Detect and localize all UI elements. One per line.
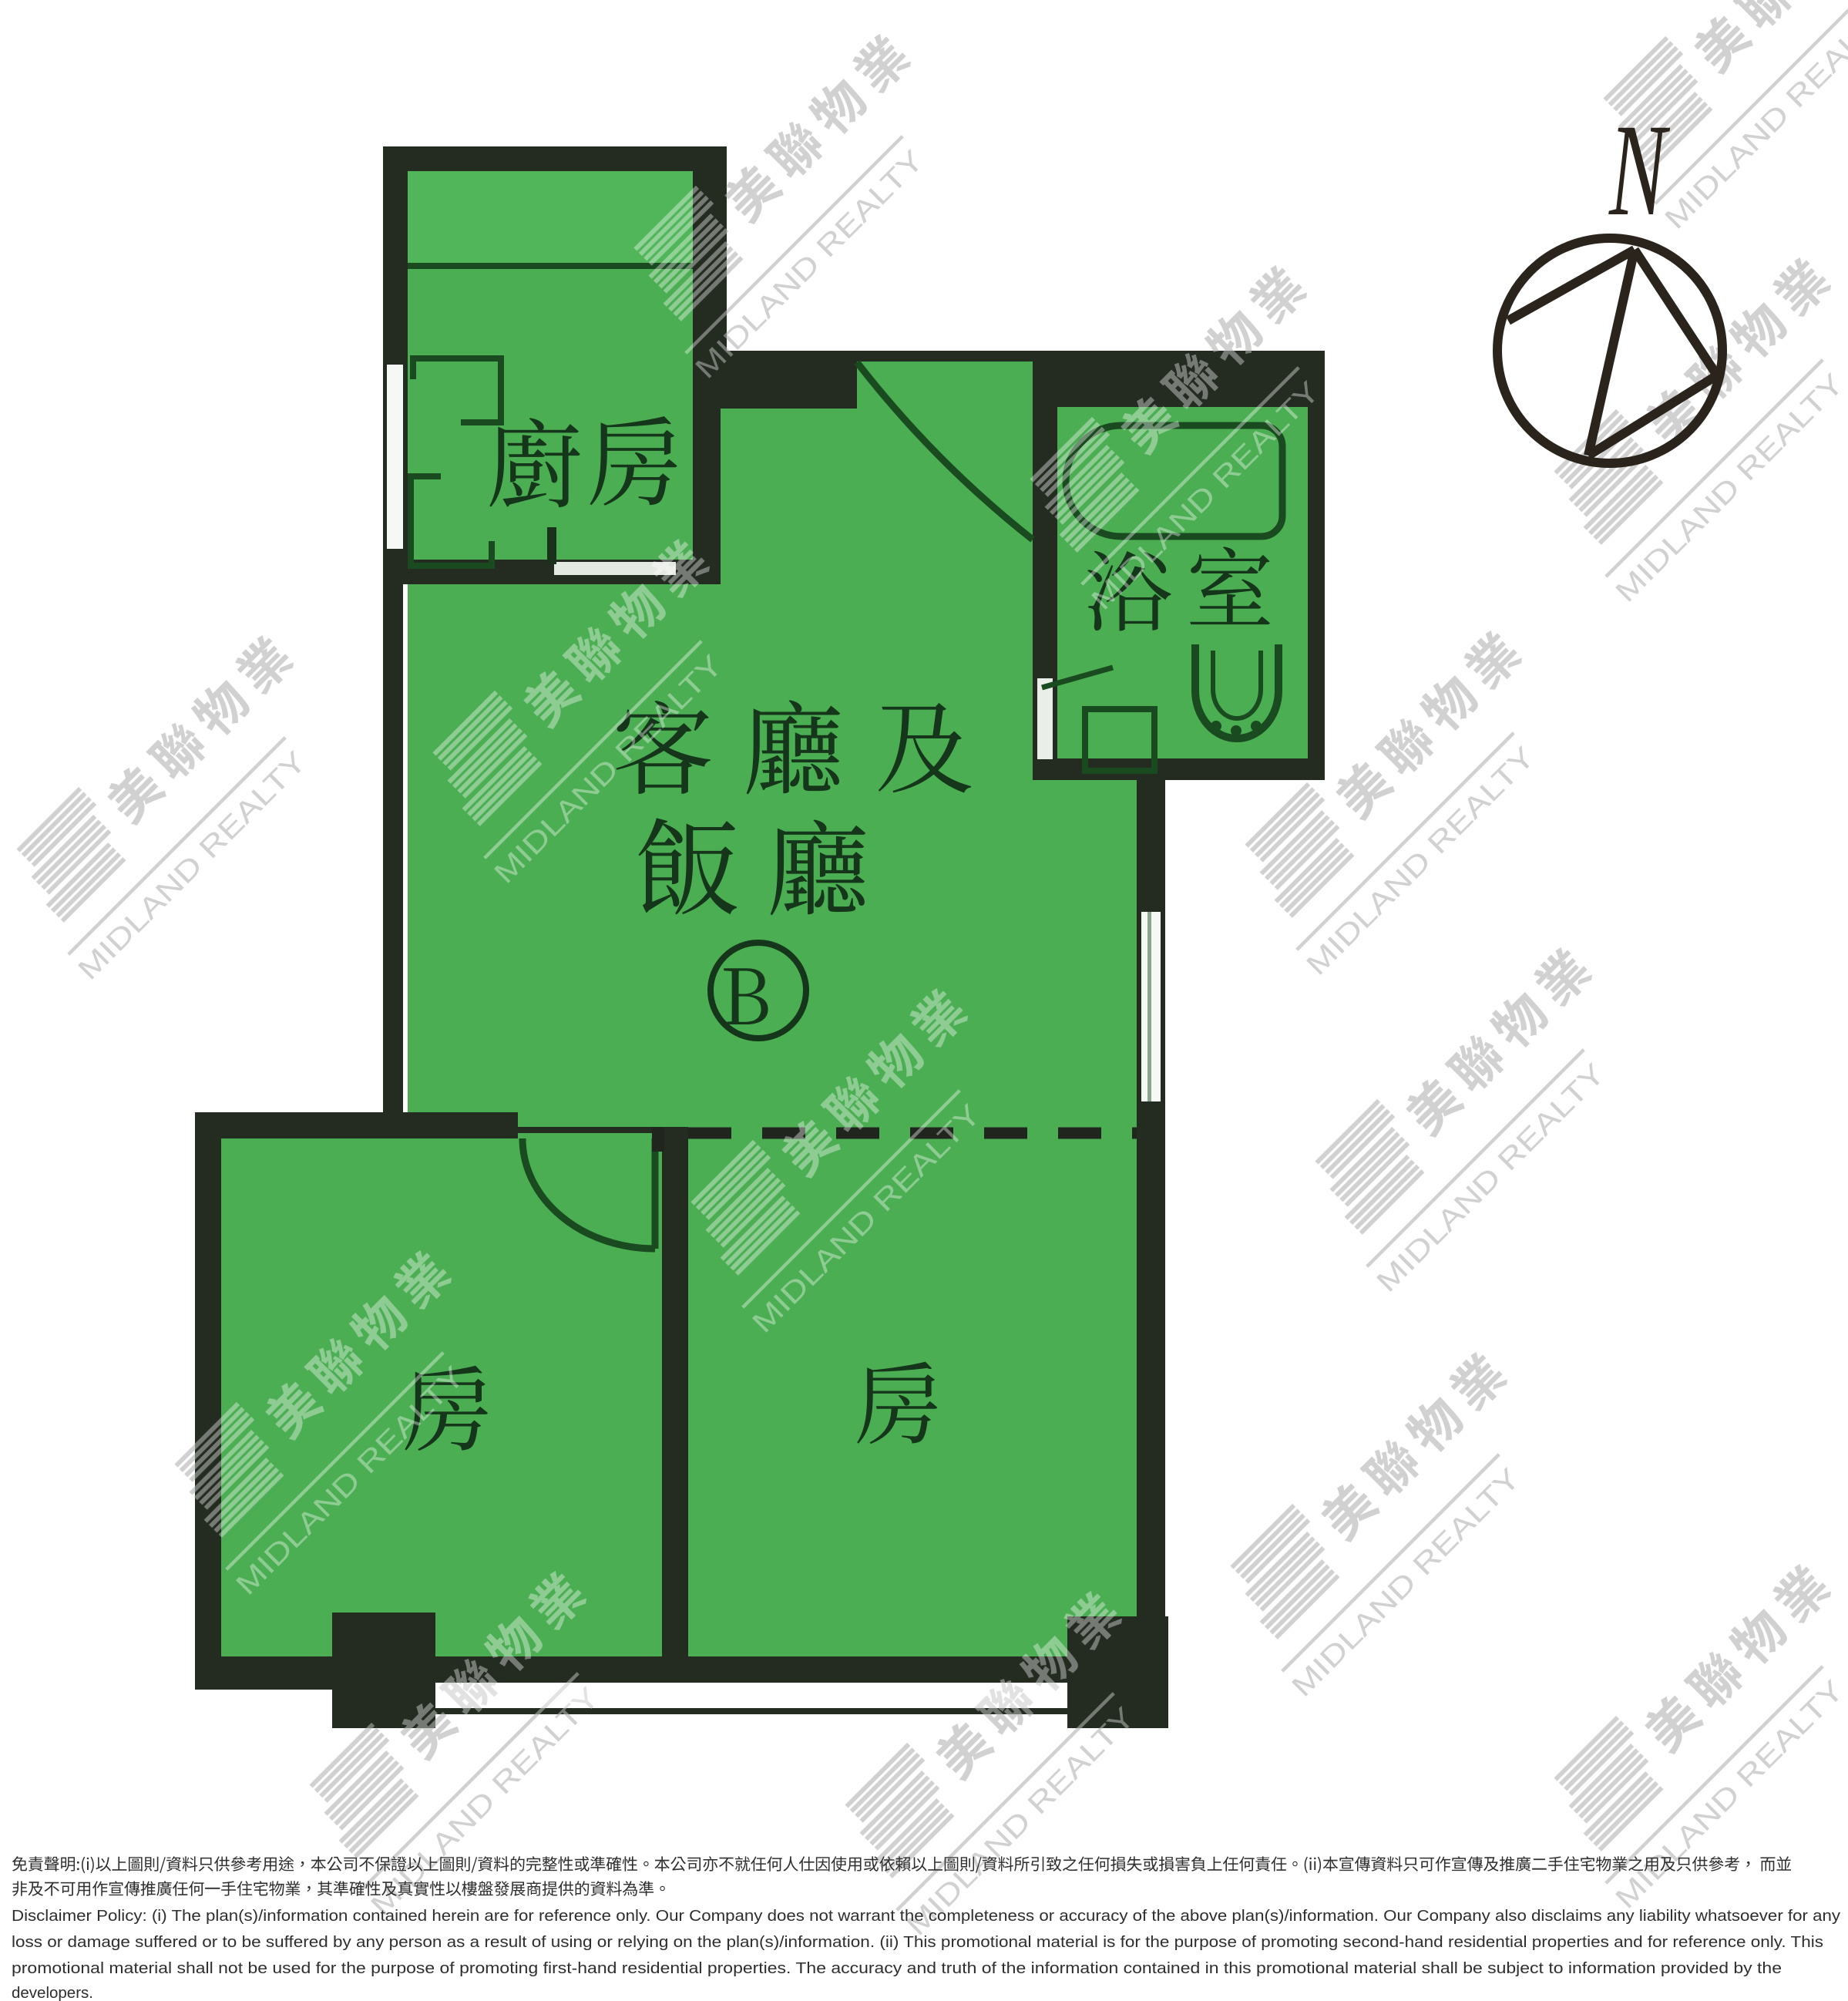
svg-text:promotional material shall not: promotional material shall not be used f…: [12, 1959, 1782, 1977]
svg-text:loss or damage suffered or to: loss or damage suffered or to be suffere…: [12, 1933, 1823, 1951]
svg-text:N: N: [1608, 97, 1670, 244]
svg-text:Disclaimer Policy: (i) The pla: Disclaimer Policy: (i) The plan(s)/infor…: [12, 1907, 1841, 1925]
svg-text:developers.: developers.: [12, 1984, 93, 2001]
